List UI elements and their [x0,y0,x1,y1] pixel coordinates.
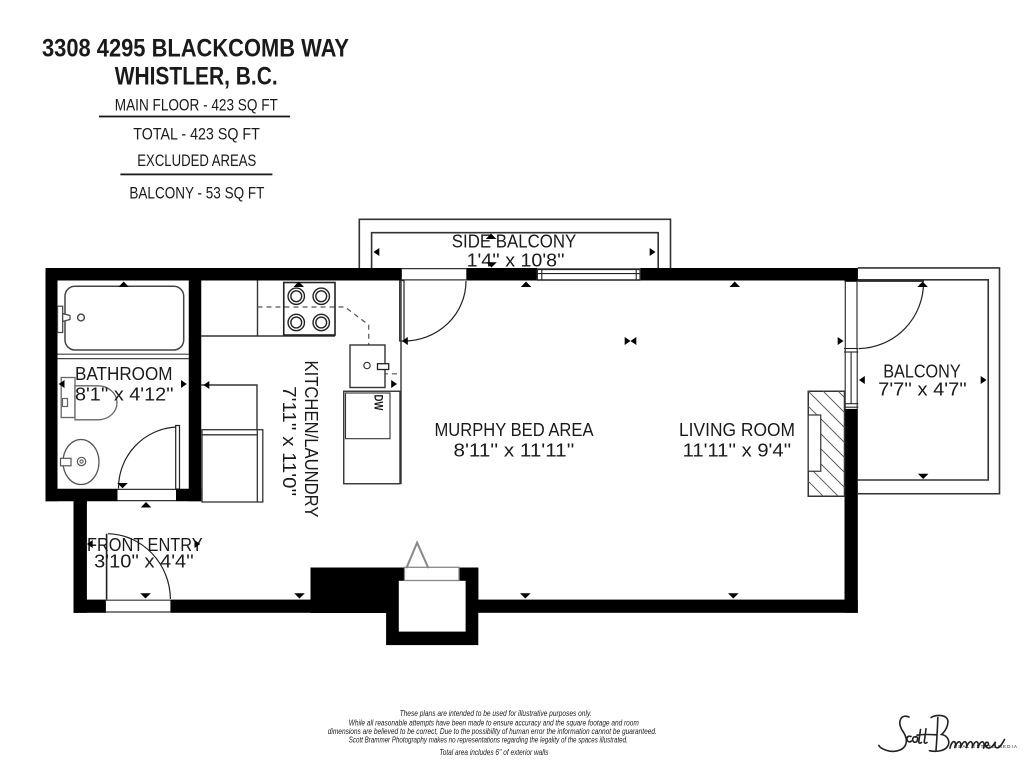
svg-text:7'7'' x 4'7'': 7'7'' x 4'7'' [878,380,967,400]
svg-text:SIDE BALCONY: SIDE BALCONY [452,232,577,252]
svg-text:EXCLUDED AREAS: EXCLUDED AREAS [137,151,256,170]
svg-text:BALCONY: BALCONY [883,362,961,382]
svg-text:BATHROOM: BATHROOM [75,364,173,384]
svg-text:3308 4295 BLACKCOMB WAY: 3308 4295 BLACKCOMB WAY [42,35,349,63]
svg-text:WHISTLER, B.C.: WHISTLER, B.C. [115,63,278,91]
svg-text:8'1'' x 4'12'': 8'1'' x 4'12'' [75,385,174,405]
svg-text:MURPHY BED AREA: MURPHY BED AREA [435,420,594,440]
svg-text:Scott Brammer Photography make: Scott Brammer Photography makes no repre… [349,736,628,745]
svg-text:Total area includes 6'' of ext: Total area includes 6'' of exterior wall… [439,748,548,757]
svg-text:BALCONY - 53 SQ FT: BALCONY - 53 SQ FT [129,184,264,203]
svg-text:These plans are intended to be: These plans are intended to be used for … [400,709,592,718]
svg-text:DW: DW [372,395,384,411]
svg-text:8'11'' x 11'11'': 8'11'' x 11'11'' [454,441,575,461]
svg-text:TOTAL - 423 SQ FT: TOTAL - 423 SQ FT [133,125,259,144]
svg-text:3'10'' x 4'4'': 3'10'' x 4'4'' [94,552,194,572]
svg-text:LIVING ROOM: LIVING ROOM [679,420,795,440]
svg-text:7'11'' x 11'0'': 7'11'' x 11'0'' [279,386,299,496]
svg-text:REAL ESTATE MEDIA: REAL ESTATE MEDIA [954,744,1018,749]
svg-text:KITCHEN/LAUNDRY: KITCHEN/LAUNDRY [301,361,321,518]
svg-text:MAIN FLOOR - 423 SQ FT: MAIN FLOOR - 423 SQ FT [115,96,278,115]
svg-text:11'11'' x 9'4'': 11'11'' x 9'4'' [683,441,792,461]
svg-text:1'4'' x 10'8'': 1'4'' x 10'8'' [467,251,565,271]
